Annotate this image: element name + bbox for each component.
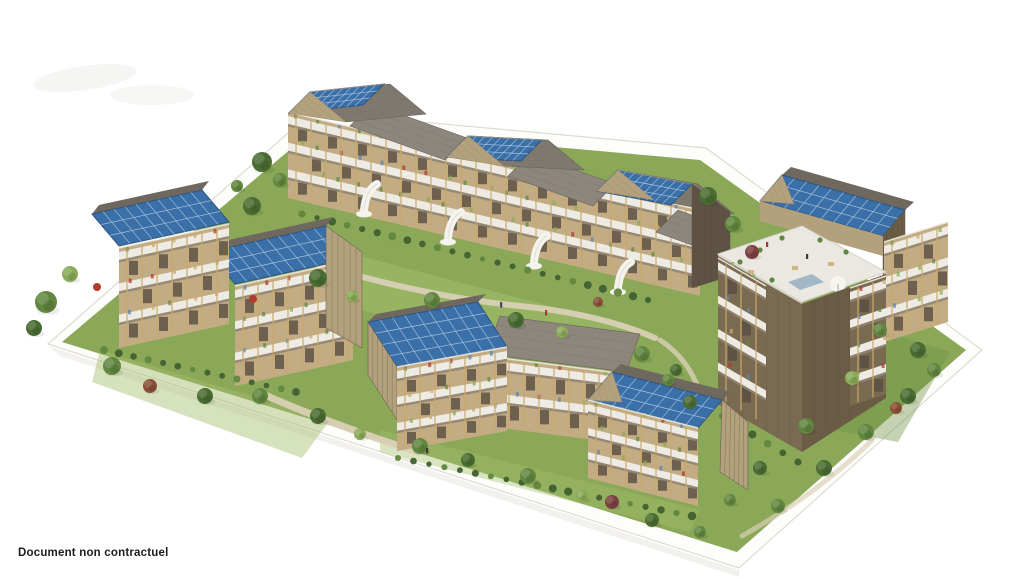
- balcony-facade: [884, 222, 948, 342]
- rendering-canvas: [0, 0, 1024, 579]
- architectural-rendering: Document non contractuel: [0, 0, 1024, 579]
- tree: [26, 320, 44, 337]
- gable-house-1: [289, 84, 426, 122]
- tree: [35, 291, 60, 315]
- tree: [62, 266, 80, 283]
- balcony-facade: [850, 276, 886, 406]
- balcony-facade: [718, 258, 766, 426]
- caption-text: Document non contractuel: [18, 547, 168, 559]
- background-smudge: [32, 59, 194, 105]
